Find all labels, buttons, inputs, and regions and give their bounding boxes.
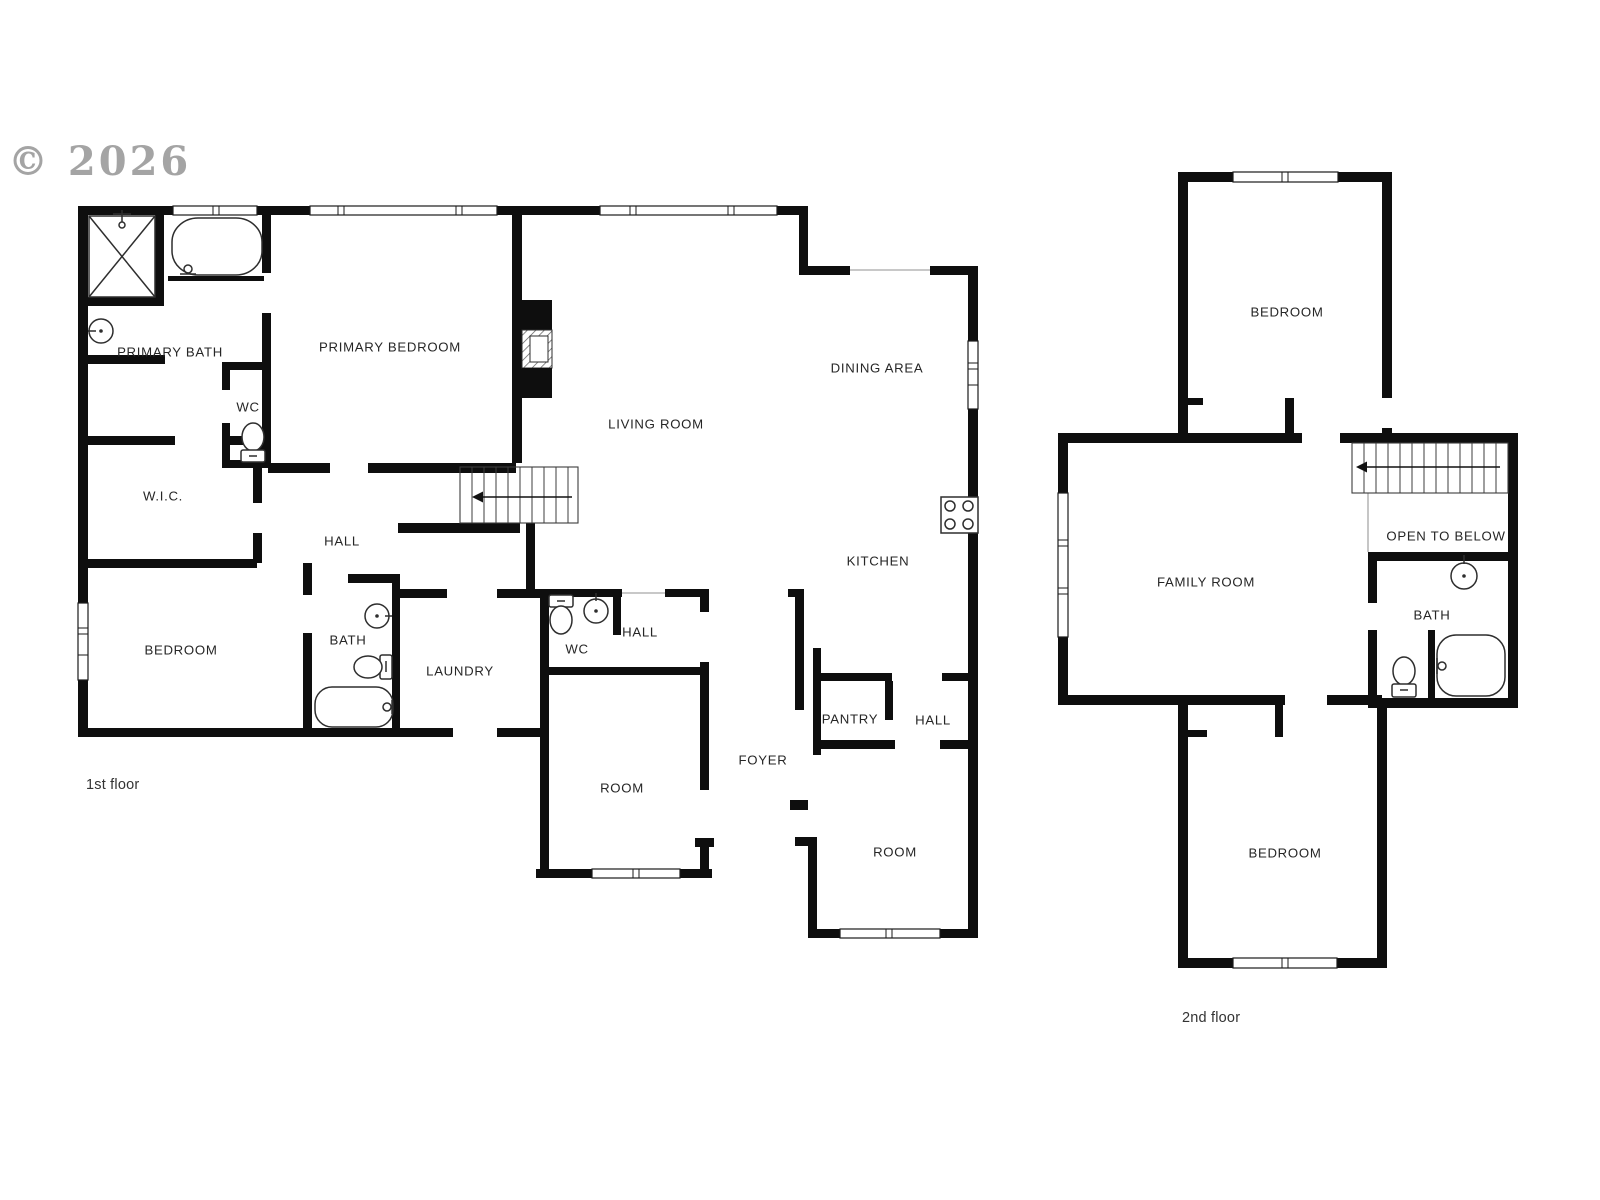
window-icon [592, 869, 680, 878]
room-label: WC [236, 400, 259, 415]
floor-plan-canvas: © 2026 [0, 0, 1600, 1200]
copyright-watermark: © 2026 [8, 138, 191, 185]
room-label: HALL [622, 625, 658, 640]
bathtub-icon [315, 687, 393, 727]
stove-icon [941, 497, 978, 533]
room-label: OPEN TO BELOW [1386, 529, 1505, 544]
room-label: DINING AREA [831, 361, 924, 376]
bathtub-icon [1437, 635, 1505, 696]
sink-icon [88, 319, 113, 343]
room-label: BEDROOM [1248, 846, 1321, 861]
toilet-icon [354, 655, 392, 679]
room-label: HALL [915, 713, 951, 728]
room-labels-second-floor: BEDROOMOPEN TO BELOWFAMILY ROOMBATHBEDRO… [1157, 305, 1506, 1026]
room-label: ROOM [600, 781, 644, 796]
second-floor-plan: BEDROOMOPEN TO BELOWFAMILY ROOMBATHBEDRO… [1058, 172, 1518, 1026]
shower-icon [89, 210, 155, 297]
window-icon [968, 341, 978, 409]
stairs-icon [1352, 443, 1508, 493]
room-label: BEDROOM [144, 643, 217, 658]
window-icon [840, 929, 940, 938]
window-icon [173, 206, 257, 215]
room-label: LIVING ROOM [608, 417, 704, 432]
floor-plan-svg: PRIMARY BATHWCPRIMARY BEDROOMLIVING ROOM… [0, 0, 1600, 1200]
stairs-icon [460, 467, 578, 523]
first-floor-plan: PRIMARY BATHWCPRIMARY BEDROOMLIVING ROOM… [78, 206, 978, 938]
window-icon [310, 206, 497, 215]
room-label: ROOM [873, 845, 917, 860]
room-label: HALL [324, 534, 360, 549]
room-label: FOYER [739, 753, 788, 768]
room-label: PRIMARY BEDROOM [319, 340, 461, 355]
window-icon [1058, 493, 1068, 637]
window-icon [1233, 958, 1337, 968]
room-label: KITCHEN [847, 554, 910, 569]
sink-icon [584, 593, 608, 623]
room-label: W.I.C. [143, 489, 183, 504]
floor-caption: 2nd floor [1182, 1010, 1240, 1026]
room-label: BATH [330, 633, 367, 648]
room-label: PRIMARY BATH [117, 345, 223, 360]
sink-icon [365, 604, 392, 628]
floor-caption: 1st floor [86, 777, 139, 793]
room-label: BEDROOM [1250, 305, 1323, 320]
room-label: LAUNDRY [426, 664, 494, 679]
room-label: BATH [1414, 608, 1451, 623]
room-label: WC [565, 642, 588, 657]
toilet-icon [1392, 657, 1416, 697]
bathtub-icon [172, 218, 262, 275]
room-label: PANTRY [822, 712, 878, 727]
room-label: FAMILY ROOM [1157, 575, 1255, 590]
window-icon [1233, 172, 1338, 182]
window-icon [600, 206, 777, 215]
toilet-icon [549, 595, 573, 634]
toilet-icon [241, 423, 265, 462]
window-icon [78, 603, 88, 680]
fireplace-icon [522, 300, 552, 398]
